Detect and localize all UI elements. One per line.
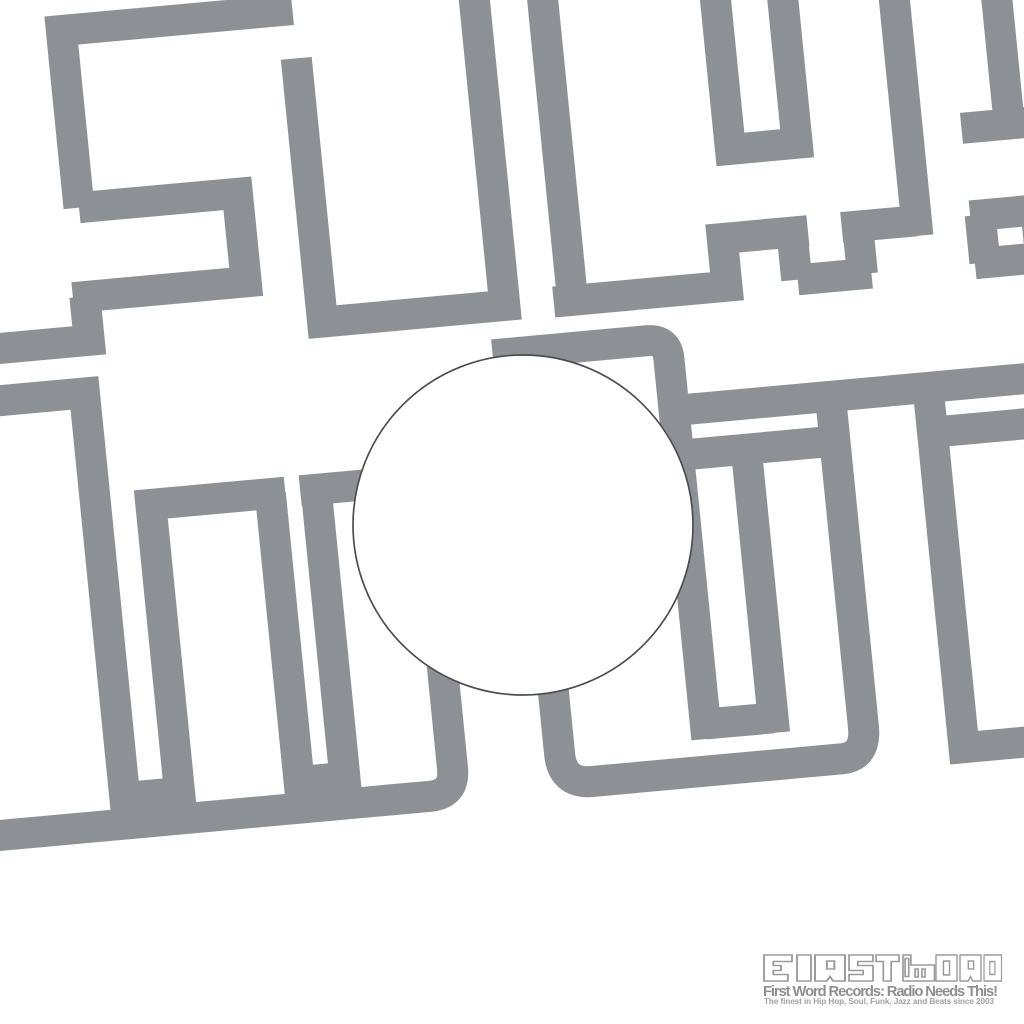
- svg-text:The finest in Hip Hop, Soul, F: The finest in Hip Hop, Soul, Funk, Jazz …: [764, 997, 994, 1006]
